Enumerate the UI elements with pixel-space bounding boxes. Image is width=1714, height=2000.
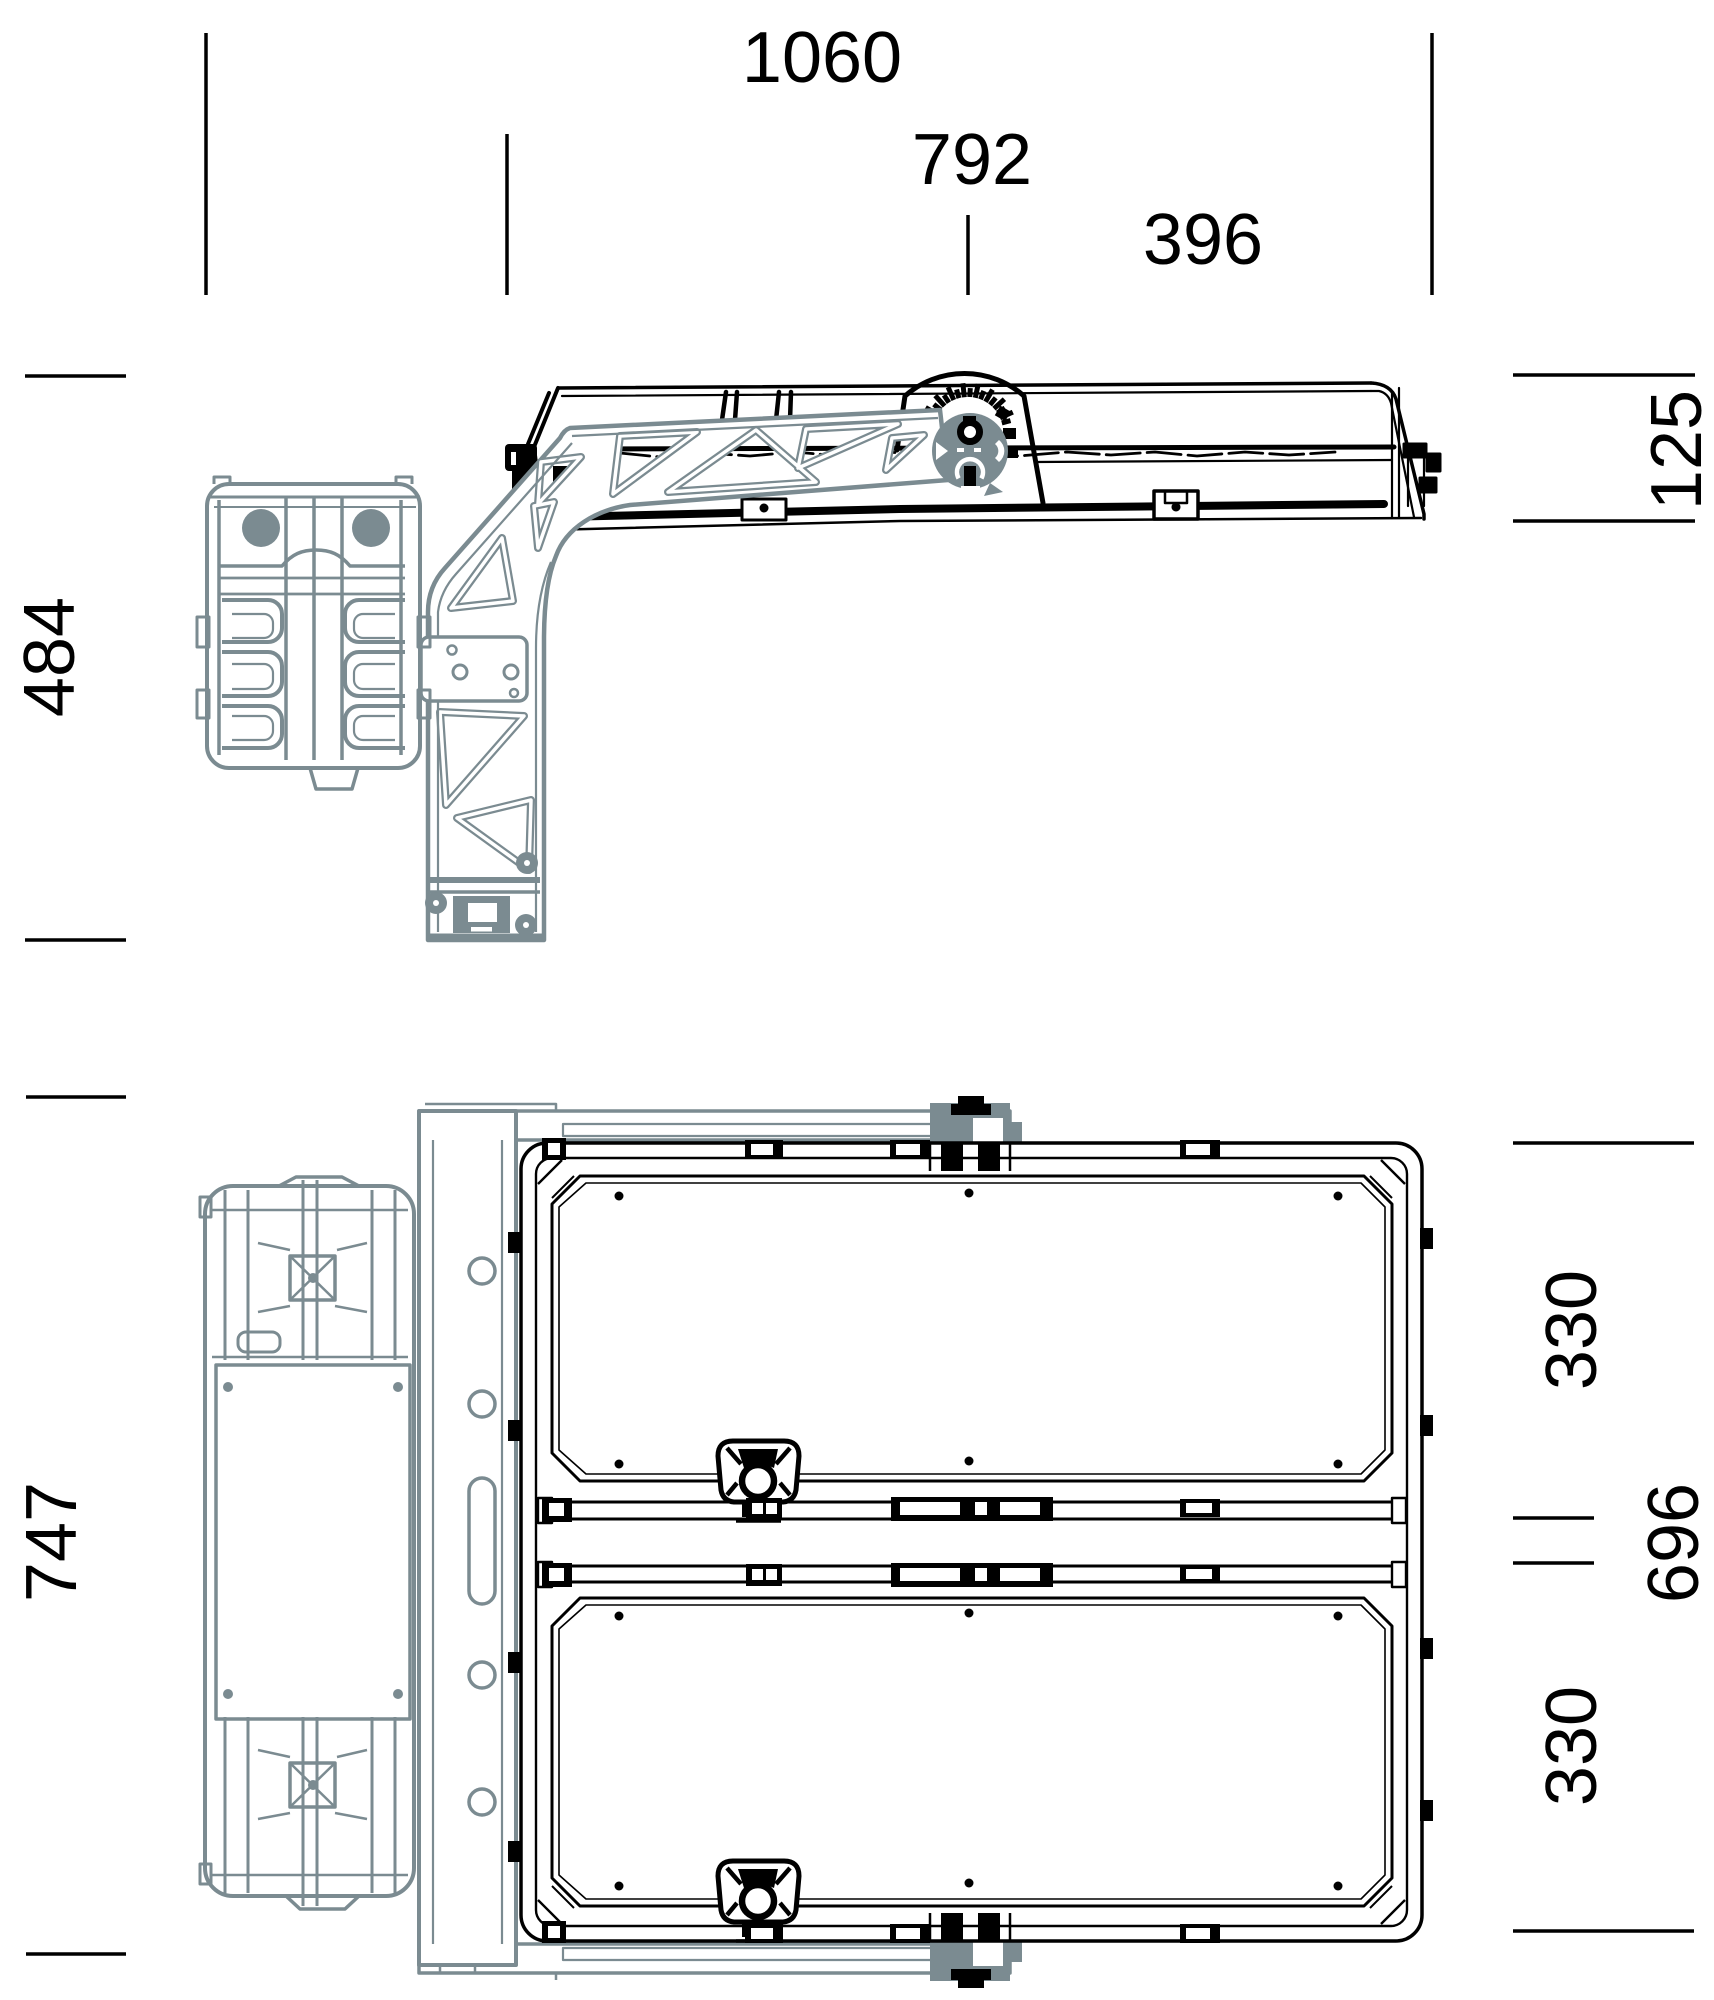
svg-text:125: 125 xyxy=(1637,390,1714,510)
svg-text:696: 696 xyxy=(1634,1483,1714,1603)
svg-text:330: 330 xyxy=(1532,1270,1612,1390)
svg-text:330: 330 xyxy=(1532,1686,1612,1806)
svg-text:792: 792 xyxy=(912,120,1032,200)
svg-text:396: 396 xyxy=(1143,200,1263,280)
svg-text:1060: 1060 xyxy=(742,18,902,98)
svg-text:484: 484 xyxy=(10,597,90,717)
svg-text:747: 747 xyxy=(12,1482,92,1602)
